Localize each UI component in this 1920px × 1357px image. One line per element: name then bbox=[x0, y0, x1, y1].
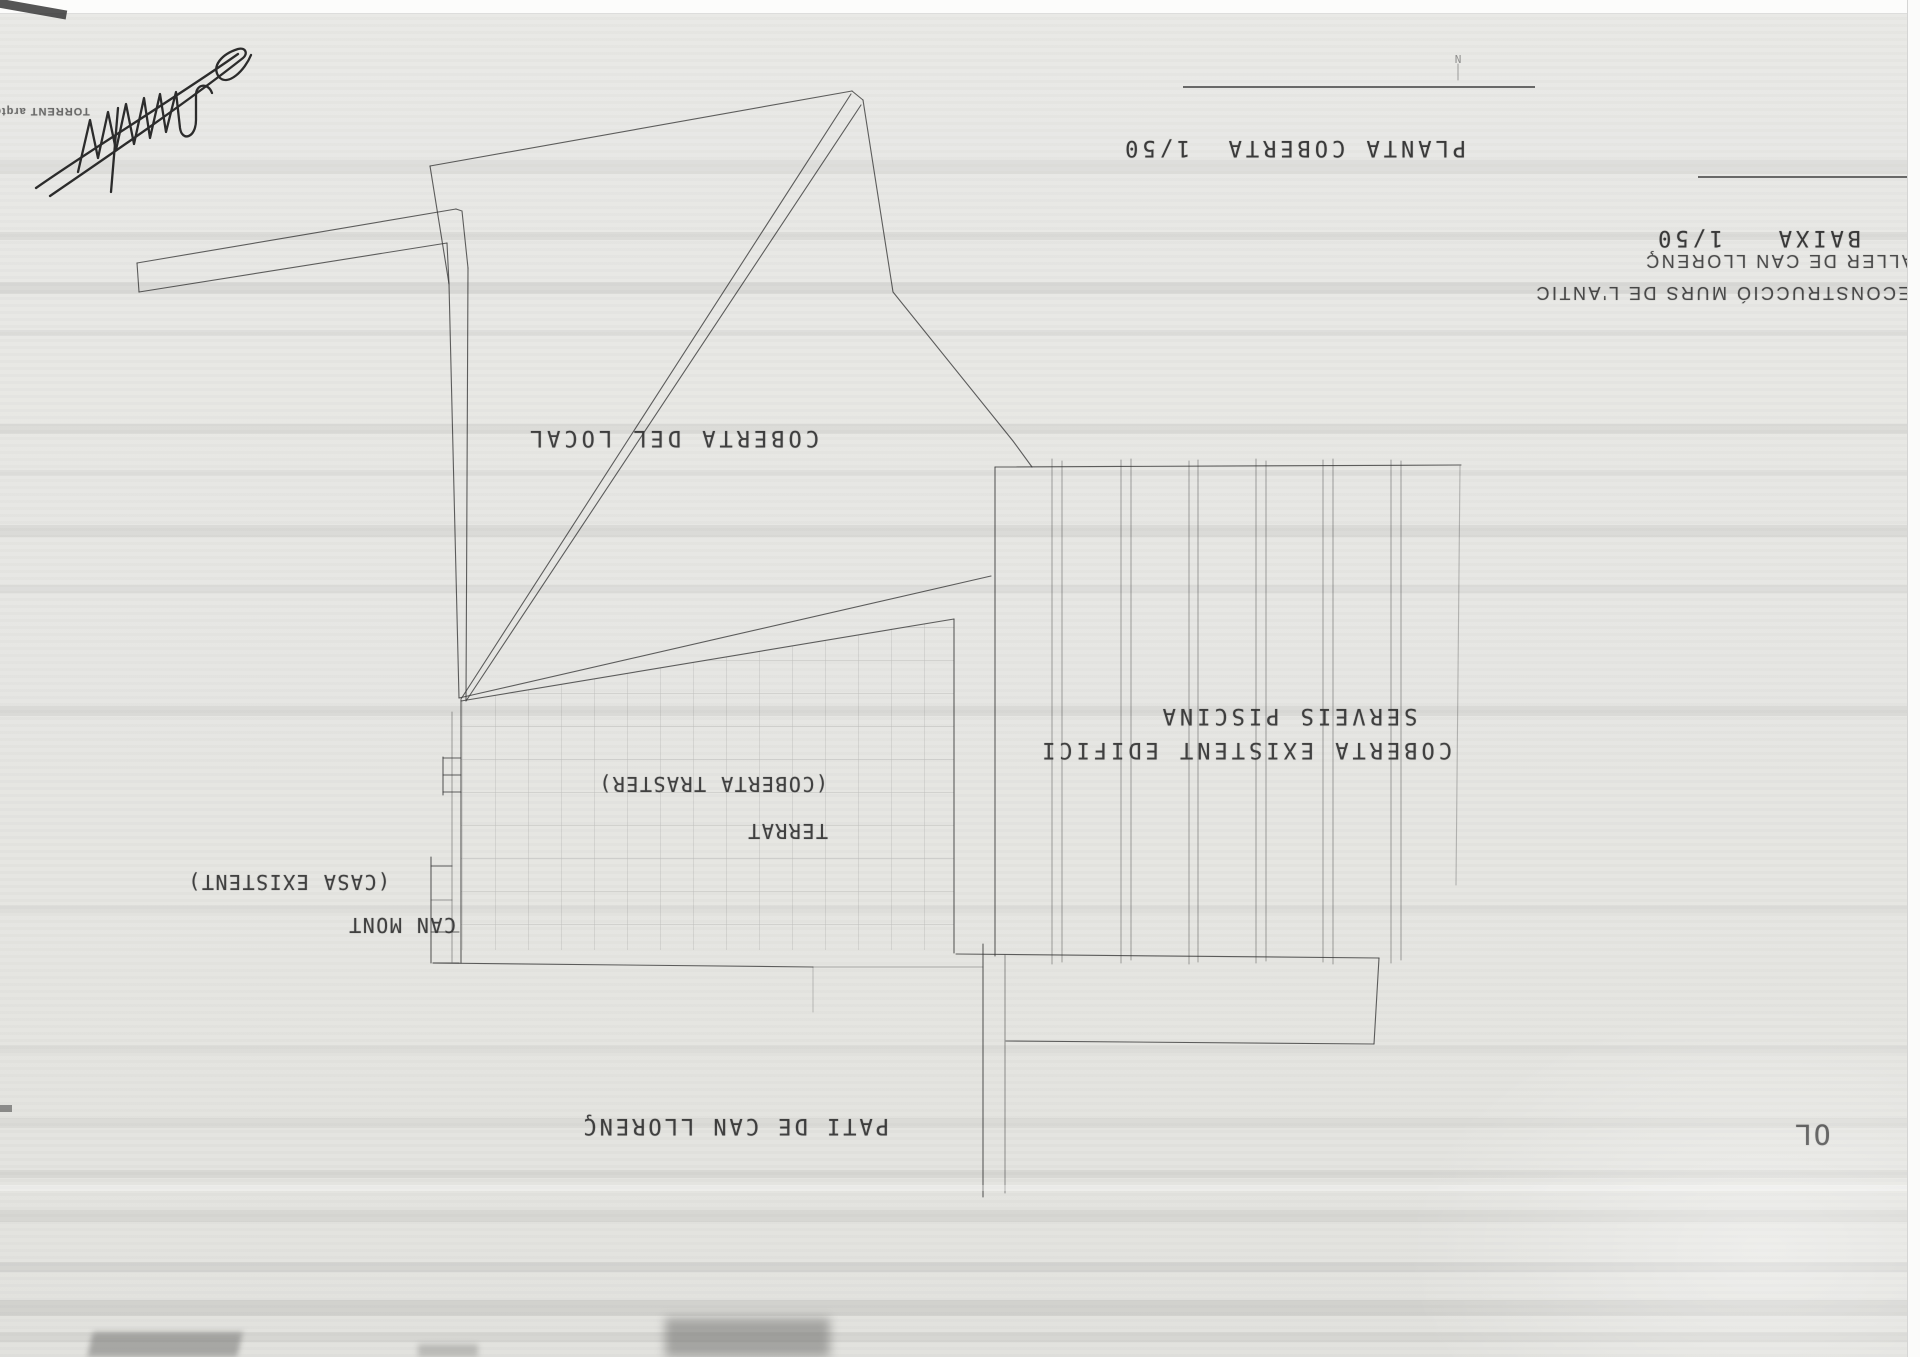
block-right-edge bbox=[1456, 466, 1460, 885]
wall-band-outer bbox=[466, 268, 468, 700]
project-line2: TALLER DE CAN LLORENÇ bbox=[1546, 247, 1920, 275]
neighbor-line1: CAN MONT bbox=[198, 913, 456, 937]
roof-apex-notch bbox=[852, 91, 863, 100]
plan-drawing bbox=[0, 0, 1920, 1357]
existing-roof-line2: SERVEIS PISCINA bbox=[1035, 702, 1455, 728]
label-roof-local: COBERTA DEL LOCAL bbox=[578, 398, 888, 476]
roof-top-edge bbox=[430, 91, 852, 166]
paper-edge-top bbox=[0, 0, 1920, 14]
existing-roof-line1: COBERTA EXISTENT EDIFICI bbox=[1035, 736, 1455, 762]
edge-fragment-text: OL bbox=[1793, 1118, 1831, 1151]
terrace-line2: (COBERTA TRASTER) bbox=[598, 772, 828, 796]
neighbor-line2: (CASA EXISTENT) bbox=[198, 870, 456, 894]
block-step-right bbox=[1374, 958, 1379, 1044]
north-mark: N bbox=[1448, 52, 1468, 65]
wall-strip-upper bbox=[137, 209, 456, 263]
label-edge-fragment: OL bbox=[1846, 1095, 1906, 1173]
plan-title-text: PLANTA COBERTA 1/50 bbox=[1121, 135, 1466, 160]
courtyard-boundary bbox=[433, 963, 813, 967]
scanned-plan-page: TORRENT arqte PLANTA COBERTA 1/50 BAIXA … bbox=[0, 0, 1920, 1357]
courtyard-text: PATI DE CAN LLORENÇ bbox=[580, 1113, 889, 1138]
label-existing-roof: COBERTA EXISTENT EDIFICI SERVEIS PISCINA bbox=[1035, 702, 1455, 762]
label-plan-title: PLANTA COBERTA 1/50 bbox=[1183, 86, 1535, 198]
wall-strip-jog-outer bbox=[456, 209, 468, 268]
roof-right-edge bbox=[863, 100, 1032, 467]
architect-stamp-text: TORRENT arqte bbox=[0, 105, 90, 117]
block-step-bottom bbox=[1006, 1041, 1374, 1044]
architect-stamp: TORRENT arqte bbox=[10, 90, 106, 132]
wall-strip-cap bbox=[137, 263, 139, 292]
wall-strip-lower bbox=[139, 243, 447, 292]
label-neighbor-house: CAN MONT (CASA EXISTENT) bbox=[198, 870, 456, 937]
label-terrace: TERRAT (COBERTA TRASTER) bbox=[598, 772, 828, 843]
project-line1: RECONSTRUCCIÓ MURS DE L'ANTIC bbox=[1546, 279, 1920, 307]
north-mark-text: N bbox=[1455, 52, 1462, 65]
roof-left-edge bbox=[430, 166, 459, 698]
project-title-block: RECONSTRUCCIÓ MURS DE L'ANTIC TALLER DE … bbox=[1546, 247, 1920, 307]
label-courtyard: PATI DE CAN LLORENÇ bbox=[634, 1086, 954, 1164]
block-bottom-edge bbox=[956, 954, 1379, 958]
paper-edge-right bbox=[1907, 0, 1920, 1357]
roof-ridge-line-1 bbox=[461, 94, 851, 699]
terrace-line1: TERRAT bbox=[598, 819, 828, 843]
roof-local-text: COBERTA DEL LOCAL bbox=[526, 425, 819, 450]
